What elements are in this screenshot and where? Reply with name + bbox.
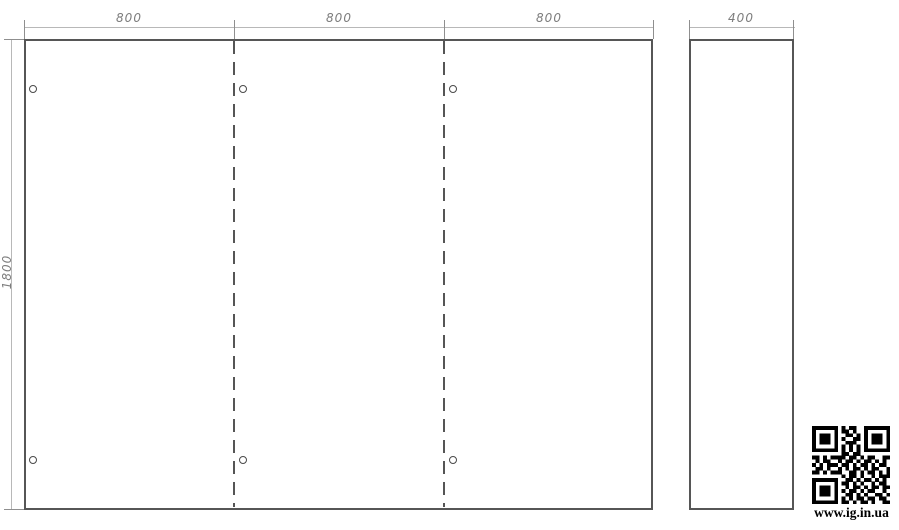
qr-code-icon [812,426,890,504]
website-url: www.ig.in.ua [804,505,899,521]
hole [29,85,37,93]
dim-label-800-segment2: 800 [309,11,369,25]
extension-line [24,20,25,39]
extension-line [653,20,654,39]
drawing-canvas: 800 800 800 400 1800 www.ig.in.ua [0,0,899,530]
extension-line [689,20,690,39]
panel-front-view [24,39,653,510]
panel-side-view [689,39,794,510]
extension-line [793,20,794,39]
extension-line [234,20,235,39]
dimension-line-top-main [24,27,654,28]
extension-line [4,39,25,40]
extension-line [4,509,25,510]
hole [449,456,457,464]
fold-line-2 [443,41,445,507]
hole [29,456,37,464]
hole [239,456,247,464]
dim-label-400-side: 400 [711,11,771,25]
hole [239,85,247,93]
dimension-line-top-side [689,27,795,28]
fold-line-1 [233,41,235,507]
dim-label-800-segment1: 800 [99,11,159,25]
dim-label-800-segment3: 800 [519,11,579,25]
hole [449,85,457,93]
dim-label-1800-height: 1800 [0,242,14,302]
extension-line [444,20,445,39]
